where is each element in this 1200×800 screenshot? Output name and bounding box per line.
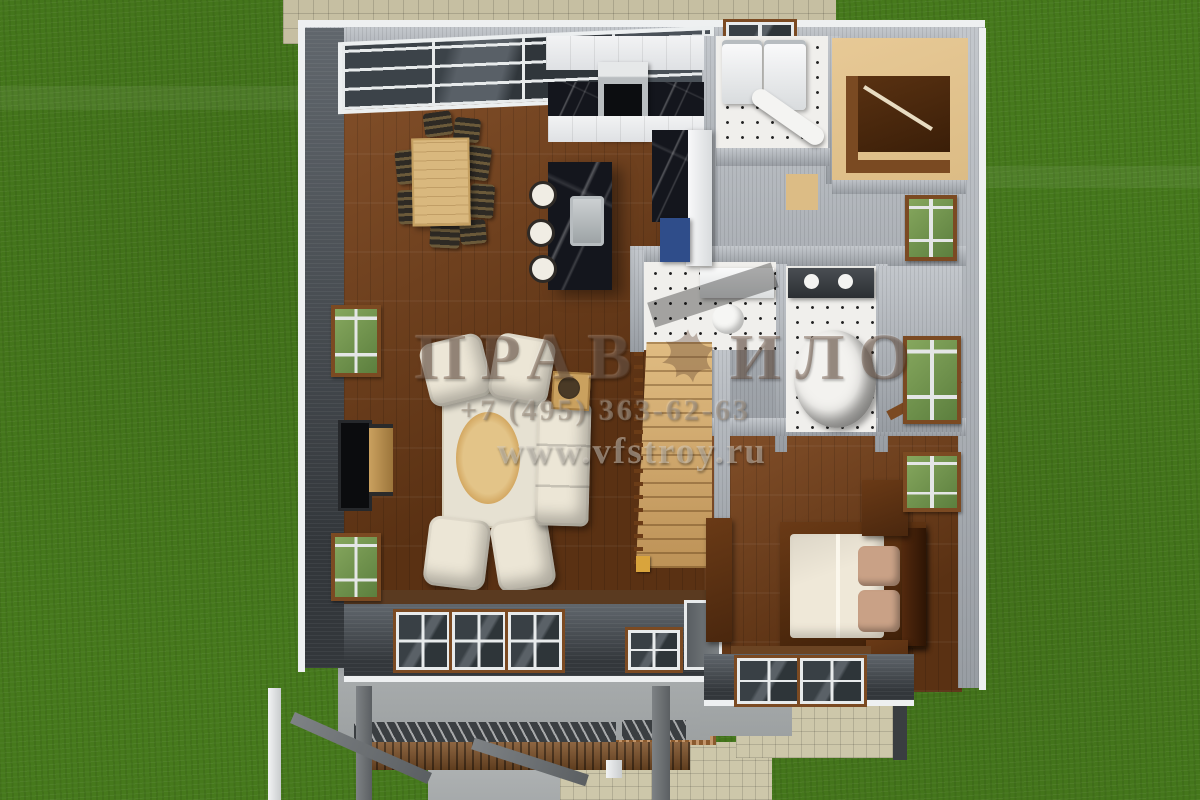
dining-chair — [422, 110, 453, 138]
floor-plan-3d-render-scene: ПРАВ ИЛО +7 (495) 363-62-63 www.vfstroy.… — [0, 0, 1200, 800]
bed-pillow-1 — [858, 546, 900, 586]
kitchen-blue-cabinet — [660, 218, 690, 262]
wall-powder-left — [630, 250, 644, 352]
front-small-window — [628, 630, 680, 670]
kitchen-counter-right — [646, 82, 704, 118]
porch-post-base-white — [606, 760, 622, 778]
bathroom-vanity — [788, 268, 874, 298]
right-wall-window-top — [905, 195, 957, 261]
kitchen-counter-left — [548, 82, 600, 118]
armchair-bottom-right — [489, 514, 558, 594]
porch-post-white — [268, 688, 281, 800]
bed-headboard — [902, 528, 926, 646]
left-wall-window-2 — [331, 533, 381, 601]
wall-laundry-bottom — [716, 148, 830, 166]
powder-toilet — [712, 304, 744, 334]
bedroom-tall-chest — [862, 480, 908, 536]
bedroom-wardrobe — [706, 518, 732, 642]
living-room-window-1 — [396, 612, 450, 670]
porch-railing-left — [354, 722, 616, 742]
house-floor-plan — [298, 20, 986, 692]
bed-pillow-2 — [858, 590, 900, 632]
wall-tv — [338, 420, 372, 511]
grass-mow-stripe-left — [0, 86, 298, 110]
island-double-sink — [570, 196, 604, 246]
bedroom-window-right — [903, 452, 961, 512]
bar-stool-1 — [529, 181, 557, 209]
plant-pot — [558, 377, 580, 399]
exterior-wall-left-cap — [298, 24, 305, 672]
stairwell-rail-left — [846, 76, 858, 172]
staircase-balusters — [634, 348, 643, 564]
bedroom-window-bottom-2 — [800, 658, 864, 704]
bathroom-window — [903, 336, 961, 424]
hall-threshold — [786, 174, 818, 210]
dining-chair — [469, 183, 495, 219]
media-console — [369, 424, 393, 496]
armchair-top-right — [487, 331, 558, 406]
sofa — [534, 401, 591, 526]
porch-post-gray-right — [652, 686, 670, 800]
stairwell-rail-bottom — [846, 160, 950, 173]
bathroom-sink-bowl-1 — [804, 274, 819, 289]
bedroom-window-bottom-1 — [737, 658, 801, 704]
exterior-wall-right-cap — [979, 28, 986, 690]
rug-oval-center — [456, 412, 520, 504]
bathroom-sink-bowl-2 — [838, 274, 853, 289]
staircase-newel-post — [636, 556, 650, 572]
left-wall-window-1 — [331, 305, 381, 377]
living-room-window-3 — [508, 612, 562, 670]
bar-stool-3 — [529, 255, 557, 283]
dining-table — [411, 138, 471, 227]
bar-stool-2 — [527, 219, 555, 247]
armchair-bottom-left — [422, 514, 492, 591]
staircase — [636, 342, 712, 568]
wall-stairroom-bottom — [832, 178, 966, 194]
living-room-window-2 — [452, 612, 506, 670]
grass-mow-stripe-right — [986, 166, 1200, 188]
kitchen-side-counter — [652, 130, 688, 222]
